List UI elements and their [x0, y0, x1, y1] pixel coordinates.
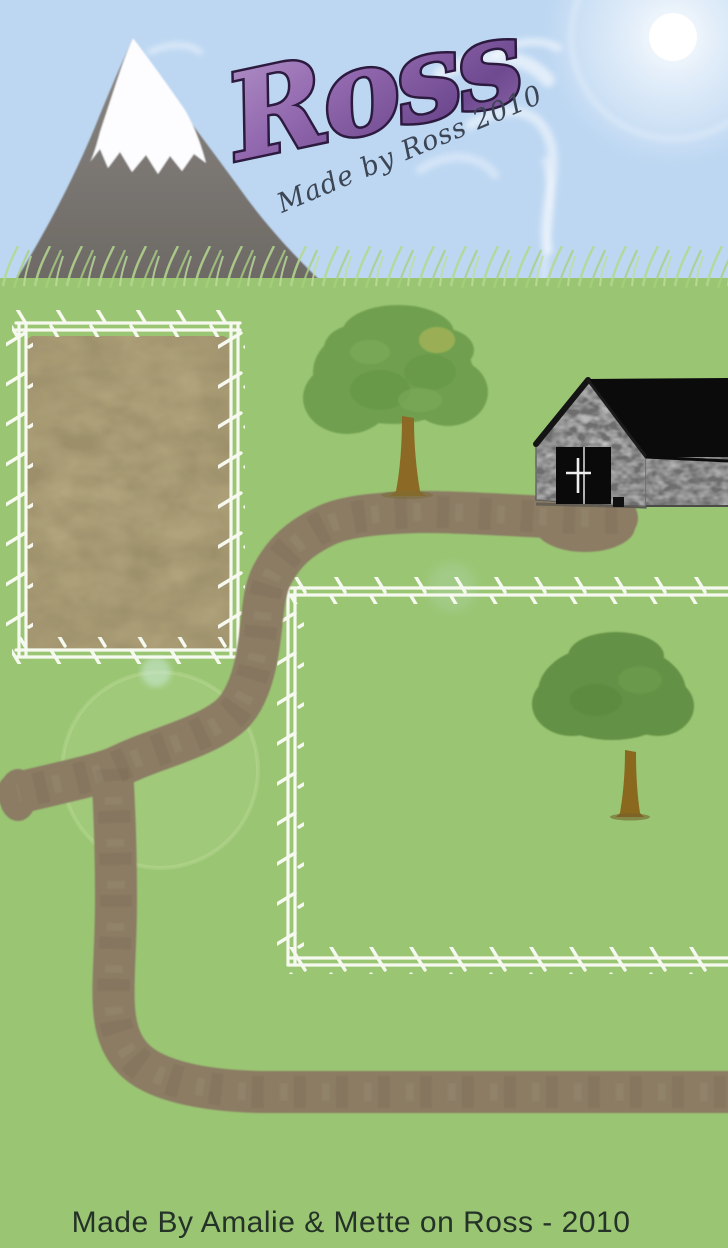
canopy-yellow-patch: [419, 327, 455, 353]
sand-arena: [26, 336, 230, 650]
farm-map-canvas: Ross Made by Ross 2010 Made By Amalie & …: [0, 0, 728, 1248]
barn-door-right: [585, 447, 611, 504]
tree-left-base: [381, 491, 433, 499]
barn-side-wall: [646, 457, 728, 507]
path-end-blob: [0, 769, 37, 821]
tree-right-base: [610, 814, 650, 821]
credit-caption: Made By Amalie & Mette on Ross - 2010: [72, 1206, 631, 1239]
barn-base-notch: [613, 497, 624, 507]
sun-core: [649, 13, 697, 61]
grass-horizon-blades: [0, 246, 728, 294]
farm-map: Ross Made by Ross 2010 Made By Amalie & …: [0, 0, 728, 1248]
sand-paddock: [6, 310, 245, 664]
